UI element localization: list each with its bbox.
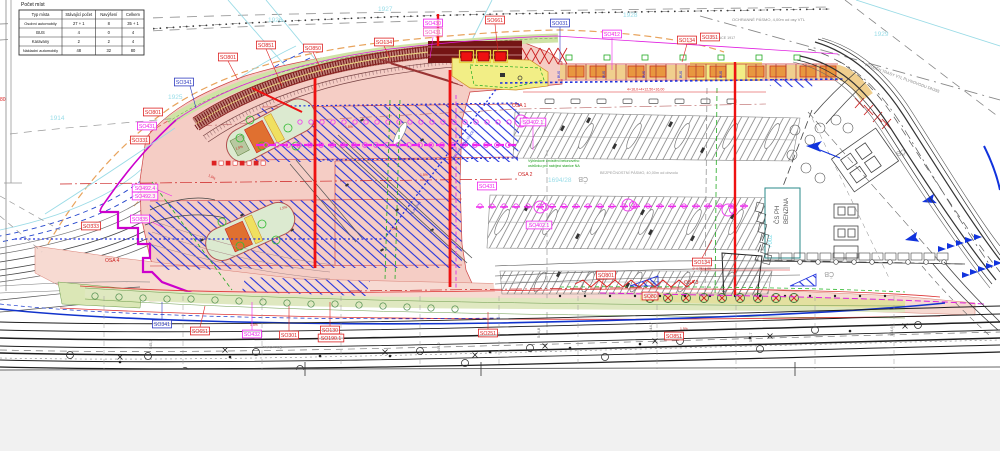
svg-text:SO80: SO80 — [643, 294, 656, 300]
svg-text:BUS: BUS — [679, 70, 683, 78]
svg-text:48: 48 — [76, 48, 81, 53]
svg-text:SO333: SO333 — [83, 224, 99, 230]
svg-text:SO492.3: SO492.3 — [135, 194, 156, 200]
svg-text:544,9: 544,9 — [437, 342, 441, 352]
svg-text:Počet míst: Počet míst — [21, 2, 45, 8]
svg-text:OCHRANNÉ PÁSMO, 4,00m od osy V: OCHRANNÉ PÁSMO, 4,00m od osy VTL — [732, 17, 806, 22]
svg-text:SO331: SO331 — [132, 138, 148, 144]
svg-text:OSA 1: OSA 1 — [512, 103, 527, 109]
svg-text:SO402.1: SO402.1 — [523, 120, 544, 126]
svg-text:+002: +002 — [768, 234, 774, 248]
svg-text:BUS: BUS — [642, 70, 646, 78]
svg-text:SO251: SO251 — [480, 331, 496, 337]
svg-text:80: 80 — [0, 97, 6, 103]
svg-text:Výhledové umístění betonového: Výhledové umístění betonového — [528, 159, 579, 163]
svg-text:544,6: 544,6 — [890, 326, 894, 336]
svg-text:SO190.1: SO190.1 — [321, 336, 342, 342]
svg-text:SO301: SO301 — [281, 333, 297, 339]
svg-text:1927: 1927 — [378, 6, 393, 13]
svg-text:BENZINA: BENZINA — [784, 198, 790, 224]
svg-text:SO801: SO801 — [598, 273, 614, 279]
svg-text:SO134: SO134 — [679, 38, 695, 44]
svg-text:Navýšení: Navýšení — [100, 12, 118, 17]
svg-text:BUS: BUS — [719, 70, 723, 78]
svg-text:SO851: SO851 — [666, 334, 682, 340]
svg-text:BUS: BUS — [557, 70, 561, 78]
svg-text:SO351: SO351 — [702, 35, 718, 41]
svg-text:1929: 1929 — [874, 31, 889, 38]
svg-text:ČB: ČB — [824, 270, 834, 279]
svg-text:SO661: SO661 — [487, 18, 503, 24]
svg-text:SO130: SO130 — [322, 328, 338, 334]
svg-text:4+4,75+4,00: 4+4,75+4,00 — [692, 267, 711, 271]
svg-text:ČB: ČB — [578, 175, 588, 184]
svg-text:SO801: SO801 — [145, 110, 161, 116]
svg-text:SO402.1: SO402.1 — [529, 223, 550, 229]
svg-text:1,5%: 1,5% — [420, 173, 428, 177]
svg-text:Štíco želez: Štíco želez — [262, 345, 282, 350]
svg-text:Nákladní automobily: Nákladní automobily — [23, 48, 58, 53]
svg-text:SO835: SO835 — [132, 217, 148, 223]
svg-text:1926: 1926 — [268, 17, 283, 24]
svg-text:Typ místa: Typ místa — [32, 12, 50, 17]
svg-text:SO134: SO134 — [694, 260, 710, 266]
svg-text:SO432: SO432 — [244, 332, 260, 338]
svg-text:Osobní automobily: Osobní automobily — [24, 21, 56, 26]
svg-text:SO651: SO651 — [192, 329, 208, 335]
svg-text:OSA 4: OSA 4 — [105, 258, 120, 264]
svg-text:545,1: 545,1 — [149, 339, 153, 349]
svg-text:SO492.4: SO492.4 — [135, 186, 156, 192]
svg-text:SO412: SO412 — [604, 32, 620, 38]
svg-text:Celkem: Celkem — [126, 12, 140, 17]
svg-text:BUS: BUS — [36, 30, 45, 35]
svg-text:1694/28: 1694/28 — [548, 177, 572, 184]
svg-text:4×16,0+4×12,50+16,00: 4×16,0+4×12,50+16,00 — [627, 88, 664, 92]
svg-text:ČS PH: ČS PH — [774, 206, 781, 224]
svg-text:BUS: BUS — [602, 70, 606, 78]
svg-text:SO134: SO134 — [376, 40, 392, 46]
svg-text:27 + 1: 27 + 1 — [73, 21, 85, 26]
svg-text:SO431: SO431 — [139, 124, 155, 130]
svg-text:Karavany: Karavany — [32, 39, 50, 44]
svg-text:1925: 1925 — [168, 94, 183, 101]
svg-text:SO431: SO431 — [425, 30, 441, 36]
svg-text:35 + 1: 35 + 1 — [127, 21, 139, 26]
svg-text:1928: 1928 — [623, 12, 638, 19]
svg-text:SO341: SO341 — [176, 80, 192, 86]
svg-text:SO431: SO431 — [479, 184, 495, 190]
svg-text:32: 32 — [106, 48, 111, 53]
svg-text:544,7: 544,7 — [648, 321, 653, 332]
svg-text:SO430: SO430 — [425, 21, 441, 27]
svg-text:1914: 1914 — [50, 115, 65, 122]
svg-text:1,5%: 1,5% — [390, 227, 398, 231]
svg-text:SO801: SO801 — [220, 55, 236, 61]
svg-text:BEZPEČNOSTNÍ PÁSMO, 40,00m od: BEZPEČNOSTNÍ PÁSMO, 40,00m od obvodu — [600, 170, 678, 175]
svg-text:Stávající počet: Stávající počet — [65, 12, 93, 17]
svg-text:SO851: SO851 — [258, 43, 274, 49]
svg-text:SO850: SO850 — [305, 46, 321, 52]
svg-text:SO341: SO341 — [154, 322, 170, 328]
svg-text:1,5%: 1,5% — [345, 125, 353, 129]
svg-text:80: 80 — [131, 48, 136, 53]
svg-text:OSA 2: OSA 2 — [518, 172, 533, 178]
svg-text:544,7: 544,7 — [749, 332, 753, 342]
svg-text:544,8: 544,8 — [536, 327, 541, 338]
svg-text:SO031: SO031 — [552, 21, 568, 27]
svg-text:ostrůvku pro nabíjecí stanice: ostrůvku pro nabíjecí stanice NA — [528, 164, 580, 168]
